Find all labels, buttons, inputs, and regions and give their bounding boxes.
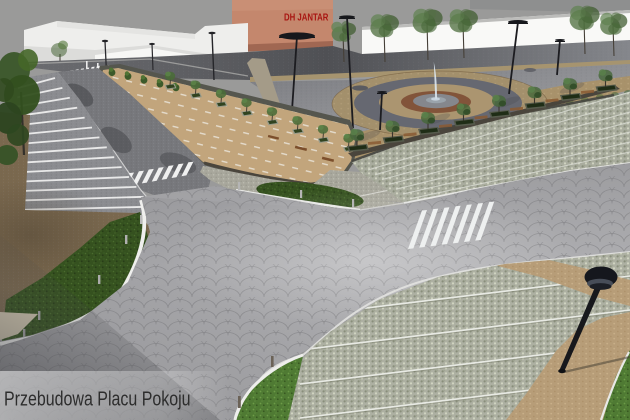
svg-text:Przebudowa Placu Pokoju: Przebudowa Placu Pokoju [4,387,191,410]
svg-text:DH JANTAR: DH JANTAR [284,12,329,23]
